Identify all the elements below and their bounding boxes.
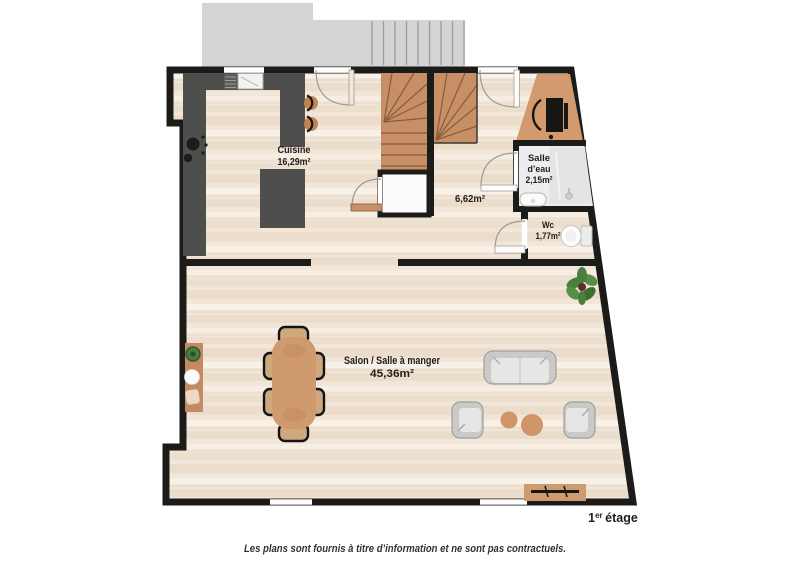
wc-area: 1,77m² — [536, 231, 561, 242]
showerroom-label-line2: d’eau — [528, 164, 551, 175]
table-shade — [282, 408, 306, 422]
washbasin-drain — [531, 199, 535, 203]
napkin-icon — [185, 389, 200, 405]
terrace-slab — [202, 3, 313, 67]
wall-hall-salon — [398, 259, 599, 266]
wall-kitchen-salon — [180, 259, 311, 266]
hall-area: 6,62m² — [455, 193, 485, 205]
door-leaf — [514, 70, 520, 107]
window — [270, 499, 312, 504]
showerroom-label-line1: Salle — [528, 153, 550, 164]
disclaimer-text: Les plans sont fournis à titre d’informa… — [244, 543, 566, 555]
toilet-tank-icon — [581, 226, 592, 246]
plate-icon — [185, 370, 200, 385]
kitchen-island — [260, 169, 305, 228]
kitchen-sink-icon — [238, 74, 263, 90]
wall-showerroom-bottom — [513, 206, 594, 212]
table-shade — [282, 344, 306, 358]
armchair-left — [452, 402, 483, 438]
stair-run-right — [434, 73, 477, 143]
exterior-terrace — [202, 3, 465, 67]
door-leaf — [349, 70, 354, 105]
door-leaf — [481, 185, 517, 191]
cuisine-area: 16,29m² — [278, 156, 311, 168]
stair-run-left — [381, 73, 427, 172]
showerroom-area: 2,15m² — [526, 175, 553, 186]
door-opening — [522, 219, 527, 249]
wc-label: Wc — [542, 220, 554, 231]
door-opening — [478, 67, 518, 73]
coffee-table-small — [501, 412, 518, 429]
sofa — [484, 351, 556, 384]
cuisine-label: Cuisine — [278, 144, 311, 156]
shower-drain-icon — [566, 193, 572, 199]
door-opening — [378, 177, 382, 208]
salon-label: Salon / Salle à manger — [344, 355, 441, 367]
floor-caption: 1erétage — [588, 511, 638, 525]
plant-pot-center — [191, 352, 196, 357]
kitchen-peninsula — [280, 90, 305, 147]
kitchen-counter-left — [183, 90, 206, 256]
dishwasher-icon — [224, 74, 237, 89]
wall-wc-left-top — [521, 212, 528, 220]
toilet-seat — [566, 230, 577, 242]
window — [224, 67, 264, 73]
desk-icon — [546, 98, 563, 132]
salon-area: 45,36m² — [370, 368, 414, 380]
floor-plan: Cuisine 16,29m² 6,62m² Salle d’eau 2,15m… — [0, 0, 800, 565]
floor-suffix: er — [595, 511, 603, 520]
understair-closet — [380, 172, 429, 215]
door-leaf — [495, 246, 525, 253]
window — [480, 499, 527, 504]
terrace-landing — [313, 20, 465, 67]
floor-plan-page: Cuisine 16,29m² 6,62m² Salle d’eau 2,15m… — [0, 0, 800, 565]
wall-showerroom-top — [513, 140, 586, 146]
floor-word: étage — [605, 511, 638, 525]
monitor-icon — [564, 103, 568, 129]
tv-stand — [524, 484, 586, 501]
desk-dot — [549, 135, 553, 139]
door-opening — [514, 151, 518, 188]
tv-icon — [531, 490, 579, 493]
coffee-table-large — [521, 414, 543, 436]
door-leaf — [351, 204, 382, 211]
floor-number: 1 — [588, 511, 595, 525]
armchair-right — [564, 402, 595, 438]
door-opening — [314, 67, 351, 73]
